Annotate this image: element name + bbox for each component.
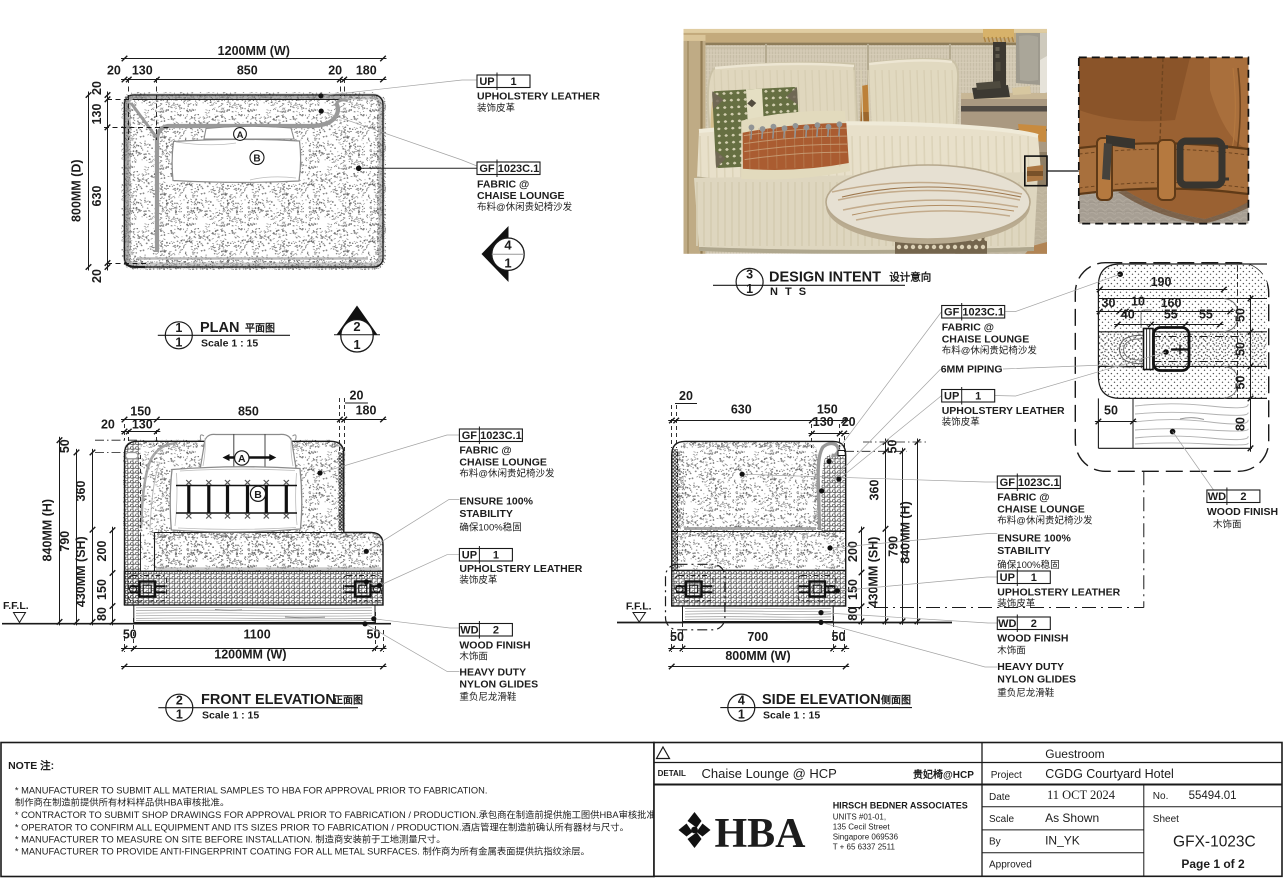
svg-text:2: 2 [353, 319, 360, 334]
svg-text:木饰面: 木饰面 [1213, 519, 1242, 531]
svg-text:装饰皮革: 装饰皮革 [459, 574, 498, 586]
svg-text:50: 50 [670, 630, 684, 644]
svg-text:850: 850 [237, 64, 258, 78]
svg-text:ENSURE 100%: ENSURE 100% [997, 533, 1071, 545]
svg-text:UP: UP [1000, 572, 1015, 584]
svg-text:30: 30 [1102, 296, 1116, 310]
svg-text:WOOD FINISH: WOOD FINISH [997, 633, 1068, 645]
svg-text:1: 1 [738, 708, 745, 722]
svg-text:B: B [253, 154, 260, 165]
svg-text:50: 50 [367, 628, 381, 642]
svg-text:1: 1 [746, 282, 753, 296]
svg-text:ENSURE 100%: ENSURE 100% [459, 496, 533, 508]
svg-text:FABRIC @: FABRIC @ [997, 492, 1049, 504]
svg-text:55: 55 [1164, 308, 1178, 322]
svg-text:装饰皮革: 装饰皮革 [942, 416, 981, 428]
svg-text:PLAN: PLAN [200, 320, 239, 336]
svg-text:N T S: N T S [770, 286, 808, 298]
svg-text:As Shown: As Shown [1045, 811, 1099, 825]
svg-text:装饰皮革: 装饰皮革 [477, 102, 516, 114]
svg-text:200: 200 [846, 541, 860, 562]
svg-text:Scale 1 : 15: Scale 1 : 15 [763, 710, 820, 722]
svg-text:840MM (H): 840MM (H) [899, 501, 913, 564]
svg-text:UP: UP [462, 549, 477, 561]
svg-text:360: 360 [868, 480, 882, 501]
svg-text:HBA: HBA [714, 811, 806, 857]
svg-text:GFX-1023C: GFX-1023C [1173, 833, 1256, 850]
svg-text:1200MM (W): 1200MM (W) [218, 44, 290, 58]
svg-text:UNITS #01-01,: UNITS #01-01, [833, 813, 886, 822]
svg-text:F.F.L.: F.F.L. [626, 601, 652, 613]
svg-text:135 Cecil Street: 135 Cecil Street [833, 823, 891, 832]
svg-text:2: 2 [1240, 491, 1246, 503]
svg-text:UP: UP [944, 390, 959, 402]
svg-text:3: 3 [746, 268, 753, 282]
svg-text:50: 50 [1234, 342, 1248, 356]
svg-text:850: 850 [238, 405, 259, 419]
svg-text:STABILITY: STABILITY [997, 545, 1050, 557]
svg-text:11 OCT 2024: 11 OCT 2024 [1047, 788, 1116, 802]
svg-text:布料@休闲贵妃椅沙发: 布料@休闲贵妃椅沙发 [459, 468, 555, 480]
svg-text:HIRSCH BEDNER ASSOCIATES: HIRSCH BEDNER ASSOCIATES [833, 801, 968, 811]
svg-text:No.: No. [1153, 791, 1169, 802]
svg-text:WOOD FINISH: WOOD FINISH [1207, 506, 1278, 518]
svg-text:* MANUFACTURER TO PROVIDE ANTI: * MANUFACTURER TO PROVIDE ANTI-FINGERPRI… [15, 846, 590, 857]
svg-text:4: 4 [504, 238, 512, 253]
svg-text:GF: GF [479, 163, 495, 175]
svg-text:FABRIC @: FABRIC @ [942, 322, 994, 334]
svg-text:* CONTRACTOR TO SUBMIT SHOP DR: * CONTRACTOR TO SUBMIT SHOP DRAWINGS FOR… [15, 809, 665, 820]
svg-text:200: 200 [95, 541, 109, 562]
svg-text:20: 20 [328, 64, 342, 78]
svg-text:430MM (SH): 430MM (SH) [74, 536, 88, 607]
svg-text:180: 180 [356, 64, 377, 78]
svg-text:130: 130 [132, 418, 153, 432]
svg-text:80: 80 [95, 607, 109, 621]
svg-text:FABRIC @: FABRIC @ [477, 179, 529, 191]
svg-text:Date: Date [989, 792, 1011, 803]
svg-text:UPHOLSTERY LEATHER: UPHOLSTERY LEATHER [997, 587, 1120, 599]
svg-text:GF: GF [1000, 477, 1016, 489]
svg-text:木饰面: 木饰面 [997, 645, 1026, 657]
svg-text:侧面图: 侧面图 [881, 694, 911, 707]
svg-text:10: 10 [1131, 295, 1145, 309]
svg-text:Page 1 of 2: Page 1 of 2 [1181, 857, 1245, 871]
svg-text:FABRIC @: FABRIC @ [459, 445, 511, 457]
svg-text:Scale 1 : 15: Scale 1 : 15 [201, 337, 258, 349]
svg-text:50: 50 [1234, 308, 1248, 322]
svg-text:FRONT ELEVATION: FRONT ELEVATION [201, 692, 336, 708]
svg-text:1: 1 [975, 390, 981, 402]
svg-text:布料@休闲贵妃椅沙发: 布料@休闲贵妃椅沙发 [997, 515, 1093, 527]
svg-text:Project: Project [991, 770, 1022, 781]
svg-text:1023C.1: 1023C.1 [962, 306, 1004, 318]
svg-text:1: 1 [1031, 572, 1037, 584]
svg-text:1: 1 [504, 256, 511, 271]
svg-text:20: 20 [90, 269, 104, 283]
svg-text:* MANUFACTURER TO SUBMIT ALL M: * MANUFACTURER TO SUBMIT ALL MATERIAL SA… [15, 786, 488, 796]
svg-text:By: By [989, 837, 1001, 848]
svg-text:B: B [254, 489, 262, 501]
svg-text:630: 630 [90, 186, 104, 207]
svg-text:1: 1 [493, 549, 499, 561]
svg-text:CGDG Courtyard Hotel: CGDG Courtyard Hotel [1045, 767, 1174, 781]
svg-text:1023C.1: 1023C.1 [1018, 477, 1060, 489]
svg-text:Chaise Lounge @ HCP: Chaise Lounge @ HCP [702, 766, 837, 781]
svg-text:700: 700 [747, 630, 768, 644]
svg-text:确保100%稳固: 确保100%稳固 [459, 522, 521, 534]
svg-text:80: 80 [846, 607, 860, 621]
svg-text:840MM (H): 840MM (H) [41, 499, 55, 562]
svg-text:20: 20 [90, 81, 104, 95]
svg-text:1100: 1100 [244, 628, 271, 642]
svg-text:1023C.1: 1023C.1 [498, 163, 540, 175]
svg-text:重负尼龙滑鞋: 重负尼龙滑鞋 [997, 687, 1055, 699]
svg-text:CHAISE LOUNGE: CHAISE LOUNGE [997, 504, 1085, 516]
svg-text:360: 360 [74, 481, 88, 502]
svg-text:1: 1 [510, 76, 516, 88]
svg-text:WD: WD [1208, 491, 1226, 503]
svg-text:IN_YK: IN_YK [1045, 834, 1080, 848]
svg-text:布料@休闲贵妃椅沙发: 布料@休闲贵妃椅沙发 [942, 345, 1038, 357]
svg-text:20: 20 [107, 64, 121, 78]
svg-text:20: 20 [842, 415, 856, 429]
svg-text:50: 50 [1234, 376, 1248, 390]
svg-text:WD: WD [460, 624, 478, 636]
svg-text:平面图: 平面图 [245, 322, 275, 334]
svg-text:800MM (D): 800MM (D) [69, 159, 83, 222]
svg-text:WD: WD [998, 618, 1016, 630]
svg-text:150: 150 [95, 579, 109, 600]
svg-text:DETAIL: DETAIL [658, 769, 686, 778]
svg-text:CHAISE LOUNGE: CHAISE LOUNGE [477, 190, 565, 202]
svg-text:2: 2 [1031, 618, 1037, 630]
svg-text:80: 80 [1234, 417, 1248, 431]
svg-text:50: 50 [58, 439, 72, 453]
svg-text:2: 2 [176, 694, 183, 708]
svg-text:55494.01: 55494.01 [1189, 790, 1237, 802]
svg-text:Scale 1 : 15: Scale 1 : 15 [202, 710, 259, 722]
svg-text:1: 1 [175, 335, 182, 349]
svg-text:180: 180 [356, 404, 377, 418]
svg-text:UPHOLSTERY LEATHER: UPHOLSTERY LEATHER [477, 91, 600, 103]
svg-text:20: 20 [350, 389, 364, 403]
svg-text:Scale: Scale [989, 814, 1014, 825]
svg-text:UPHOLSTERY LEATHER: UPHOLSTERY LEATHER [942, 405, 1065, 417]
svg-text:木饰面: 木饰面 [459, 651, 488, 663]
svg-text:Approved: Approved [989, 860, 1032, 871]
svg-text:DESIGN INTENT: DESIGN INTENT [769, 270, 881, 286]
svg-text:Sheet: Sheet [1153, 814, 1179, 825]
svg-text:确保100%稳固: 确保100%稳固 [997, 559, 1059, 571]
svg-text:CHAISE LOUNGE: CHAISE LOUNGE [942, 334, 1030, 346]
svg-text:WOOD FINISH: WOOD FINISH [459, 640, 530, 652]
svg-text:GF: GF [944, 306, 960, 318]
svg-text:1: 1 [176, 708, 183, 722]
svg-text:UPHOLSTERY LEATHER: UPHOLSTERY LEATHER [459, 563, 582, 575]
svg-text:SIDE ELEVATION: SIDE ELEVATION [762, 692, 881, 708]
svg-text:150: 150 [130, 405, 151, 419]
svg-text:800MM (W): 800MM (W) [725, 649, 790, 663]
svg-text:130: 130 [90, 104, 104, 125]
svg-text:GF: GF [462, 430, 478, 442]
svg-text:重负尼龙滑鞋: 重负尼龙滑鞋 [459, 691, 517, 703]
svg-text:F.F.L.: F.F.L. [3, 600, 29, 612]
svg-text:NOTE 注:: NOTE 注: [8, 759, 54, 772]
svg-text:1: 1 [353, 337, 360, 352]
svg-text:制作商在制造前提供所有材料样品供HBA审核批准。: 制作商在制造前提供所有材料样品供HBA审核批准。 [15, 797, 229, 808]
svg-text:T + 65 6337 2511: T + 65 6337 2511 [833, 843, 896, 852]
svg-text:正面图: 正面图 [333, 695, 363, 707]
svg-text:* OPERATOR TO CONFIRM ALL EQUI: * OPERATOR TO CONFIRM ALL EQUIPMENT AND … [15, 822, 629, 833]
svg-text:1023C.1: 1023C.1 [480, 430, 522, 442]
svg-text:* MANUFACTURER TO MEASURE ON S: * MANUFACTURER TO MEASURE ON SITE BEFORE… [15, 834, 446, 845]
svg-text:20: 20 [679, 389, 693, 403]
svg-text:A: A [237, 130, 244, 141]
svg-text:A: A [238, 453, 246, 465]
svg-text:1: 1 [175, 321, 182, 335]
svg-text:190: 190 [1151, 275, 1172, 289]
svg-text:130: 130 [813, 415, 834, 429]
svg-text:630: 630 [731, 403, 752, 417]
svg-text:UP: UP [479, 76, 494, 88]
svg-text:6MM PIPING: 6MM PIPING [941, 364, 1003, 376]
svg-text:55: 55 [1199, 308, 1213, 322]
svg-text:NYLON GLIDES: NYLON GLIDES [459, 679, 538, 691]
svg-text:4: 4 [738, 693, 745, 707]
svg-text:贵妃椅@HCP: 贵妃椅@HCP [913, 768, 974, 781]
svg-text:布料@休闲贵妃椅沙发: 布料@休闲贵妃椅沙发 [477, 201, 573, 213]
svg-text:430MM (SH): 430MM (SH) [867, 537, 881, 608]
svg-text:HEAVY DUTY: HEAVY DUTY [459, 667, 526, 679]
svg-text:790: 790 [58, 531, 72, 552]
svg-text:50: 50 [1104, 404, 1118, 418]
svg-text:NYLON GLIDES: NYLON GLIDES [997, 674, 1076, 686]
svg-text:STABILITY: STABILITY [459, 508, 512, 520]
svg-text:40: 40 [1121, 308, 1135, 322]
svg-text:2: 2 [493, 624, 499, 636]
svg-text:1200MM (W): 1200MM (W) [214, 648, 286, 662]
svg-text:HEAVY DUTY: HEAVY DUTY [997, 661, 1064, 673]
svg-text:Singapore 069536: Singapore 069536 [833, 833, 899, 842]
svg-text:CHAISE LOUNGE: CHAISE LOUNGE [459, 457, 547, 469]
svg-text:130: 130 [132, 64, 153, 78]
svg-text:20: 20 [101, 418, 115, 432]
svg-text:设计意向: 设计意向 [889, 271, 931, 284]
svg-text:Guestroom: Guestroom [1045, 747, 1104, 761]
